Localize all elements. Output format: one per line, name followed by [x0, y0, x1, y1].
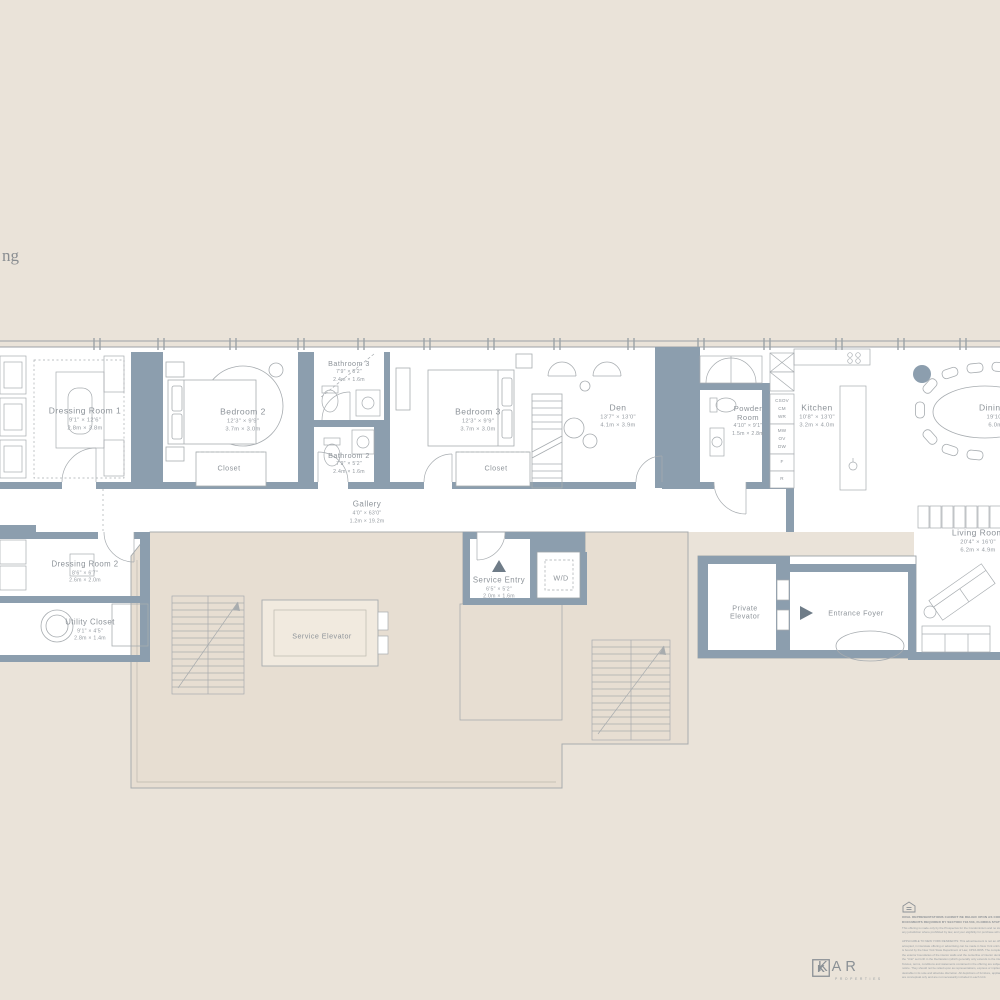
brand-mark-icon: K: [812, 959, 830, 977]
room-dim-feet: 9'1" × 4'5": [65, 628, 115, 635]
room-name: Living Room: [952, 527, 1000, 538]
legal-text-intro: This offering is made only by the Prospe…: [902, 926, 1000, 935]
room-dim-feet: 19'10" × 13'2": [979, 414, 1000, 421]
washer-dryer-label: W/D: [553, 574, 568, 583]
room-label-bathroom-2: Bathroom 2 7'9" × 5'2" 2.4m × 1.6m: [328, 451, 370, 475]
room-label-powder-room: Powder Room 4'10" × 9'1" 1.5m × 2.8m: [722, 405, 774, 437]
structural-column: [913, 365, 931, 383]
room-label-service-entry: Service Entry 6'5" × 5'2" 2.0m × 1.6m: [473, 576, 525, 601]
room-dim-feet: 20'4" × 16'0": [952, 539, 1000, 546]
room-dim-meters: 3.7m × 3.0m: [455, 426, 501, 433]
appliance-label-freezer: F: [780, 459, 783, 465]
room-name: Bedroom 3: [455, 406, 501, 417]
room-dim-feet: 6'5" × 5'2": [473, 586, 525, 593]
room-name: Service Entry: [473, 576, 525, 586]
room-dim-meters: 1.2m × 19.2m: [350, 518, 385, 525]
legal-text-ny: APPLICABLE TO NEW YORK RESIDENTS: This a…: [902, 939, 1000, 980]
room-dim-feet: 12'3" × 9'9": [220, 418, 266, 425]
room-label-den: Den 13'7" × 13'0" 4.1m × 3.9m: [600, 402, 636, 429]
room-dim-meters: 6.2m × 4.9m: [952, 547, 1000, 554]
room-name: Bedroom 2: [220, 406, 266, 417]
closet-label: Closet: [217, 464, 240, 473]
equal-housing-icon: [902, 901, 916, 913]
room-dim-feet: 12'3" × 9'9": [455, 418, 501, 425]
room-dim-meters: 6.0m × 4.0m: [979, 422, 1000, 429]
room-label-dressing-room-2: Dressing Room 2 8'6" × 6'7" 2.6m × 2.0m: [52, 560, 119, 585]
room-label-dining-room: Dining Room 19'10" × 13'2" 6.0m × 4.0m: [979, 402, 1000, 429]
room-name: Utility Closet: [65, 618, 115, 628]
legal-line: is bound by the New York State Departmen…: [902, 948, 1000, 953]
appliance-label-dw: DW: [778, 444, 786, 450]
room-dim-meters: 2.4m × 1.6m: [328, 377, 370, 384]
room-dim-meters: 2.8m × 3.8m: [49, 425, 121, 432]
room-dim-meters: 2.6m × 2.0m: [52, 578, 119, 585]
legal-line: ORAL REPRESENTATIONS CANNOT BE RELIED UP…: [902, 915, 1000, 920]
exterior-wall: [0, 341, 1000, 347]
closet-label: Closet: [484, 464, 507, 473]
room-name: Den: [600, 402, 636, 413]
legal-text-bold: ORAL REPRESENTATIONS CANNOT BE RELIED UP…: [902, 915, 1000, 924]
room-dim-feet: 7'9" × 5'2": [328, 461, 370, 468]
room-dim-meters: 3.2m × 4.0m: [799, 422, 835, 429]
room-label-dressing-room-1: Dressing Room 1 9'1" × 12'6" 2.8m × 3.8m: [49, 405, 121, 432]
appliance-label-mw: MW: [778, 428, 787, 434]
room-label-bedroom-2: Bedroom 2 12'3" × 9'9" 3.7m × 3.0m: [220, 406, 266, 433]
brand-subtitle: PROPERTIES: [835, 977, 883, 981]
room-name: Powder Room: [722, 405, 774, 422]
legal-line: APPLICABLE TO NEW YORK RESIDENTS: This a…: [902, 939, 1000, 944]
room-name: Dressing Room 1: [49, 405, 121, 416]
room-dim-meters: 2.4m × 1.6m: [328, 469, 370, 476]
room-dim-meters: 2.8m × 1.4m: [65, 636, 115, 643]
appliance-label-csov: CSOV: [775, 398, 789, 404]
room-label-gallery: Gallery 4'0" × 63'0" 1.2m × 19.2m: [350, 500, 385, 525]
room-name: Bathroom 2: [328, 451, 370, 460]
room-dim-meters: 4.1m × 3.9m: [600, 422, 636, 429]
room-dim-meters: 1.5m × 2.8m: [722, 431, 774, 438]
room-label-bedroom-3: Bedroom 3 12'3" × 9'9" 3.7m × 3.0m: [455, 406, 501, 433]
legal-line: DOCUMENTS REQUIRED BY SECTION 718.503, F…: [902, 920, 1000, 925]
room-dim-meters: 2.0m × 1.6m: [473, 594, 525, 601]
room-label-living-room: Living Room 20'4" × 16'0" 6.2m × 4.9m: [952, 527, 1000, 554]
room-label-utility-closet: Utility Closet 9'1" × 4'5" 2.8m × 1.4m: [65, 618, 115, 643]
appliance-label-wr: WR: [778, 414, 786, 420]
room-label-bathroom-3: Bathroom 3 7'9" × 5'2" 2.4m × 1.6m: [328, 359, 370, 383]
appliance-label-refrigerator: R: [780, 476, 784, 482]
room-name: Gallery: [350, 500, 385, 510]
room-dim-meters: 3.7m × 3.0m: [220, 426, 266, 433]
service-elevator-label: Service Elevator: [292, 632, 352, 641]
room-dim-feet: 8'6" × 6'7": [52, 570, 119, 577]
room-dim-feet: 7'9" × 5'2": [328, 369, 370, 376]
cropped-caption-fragment: ng: [2, 246, 19, 266]
room-name: Dressing Room 2: [52, 560, 119, 570]
room-dim-feet: 13'7" × 13'0": [600, 414, 636, 421]
private-elevator-label: Private Elevator: [722, 605, 768, 622]
appliance-label-ov: OV: [778, 436, 785, 442]
appliance-label-cm: CM: [778, 406, 786, 412]
room-dim-feet: 10'8" × 13'0": [799, 414, 835, 421]
legal-line: are conceptual only and are not necessar…: [902, 975, 1000, 980]
floor-plan-page: ng Dressing Room 1 9'1" × 12'6" 2.8m × 3…: [0, 0, 1000, 1000]
building-core: [131, 532, 688, 788]
legal-line: any jurisdiction where prohibited by law…: [902, 930, 1000, 934]
room-label-kitchen: Kitchen 10'8" × 13'0" 3.2m × 4.0m: [799, 402, 835, 429]
room-dim-feet: 4'0" × 63'0": [350, 511, 385, 518]
room-dim-feet: 4'10" × 9'1": [722, 423, 774, 430]
entrance-foyer-label: Entrance Foyer: [828, 609, 883, 618]
brand-logo: K KAR: [812, 959, 860, 975]
svg-text:K: K: [817, 963, 825, 975]
room-name: Bathroom 3: [328, 359, 370, 368]
room-name: Kitchen: [799, 402, 835, 413]
room-dim-feet: 9'1" × 12'6": [49, 417, 121, 424]
floor-plan-linework: [0, 0, 1000, 1000]
room-name: Dining Room: [979, 402, 1000, 413]
